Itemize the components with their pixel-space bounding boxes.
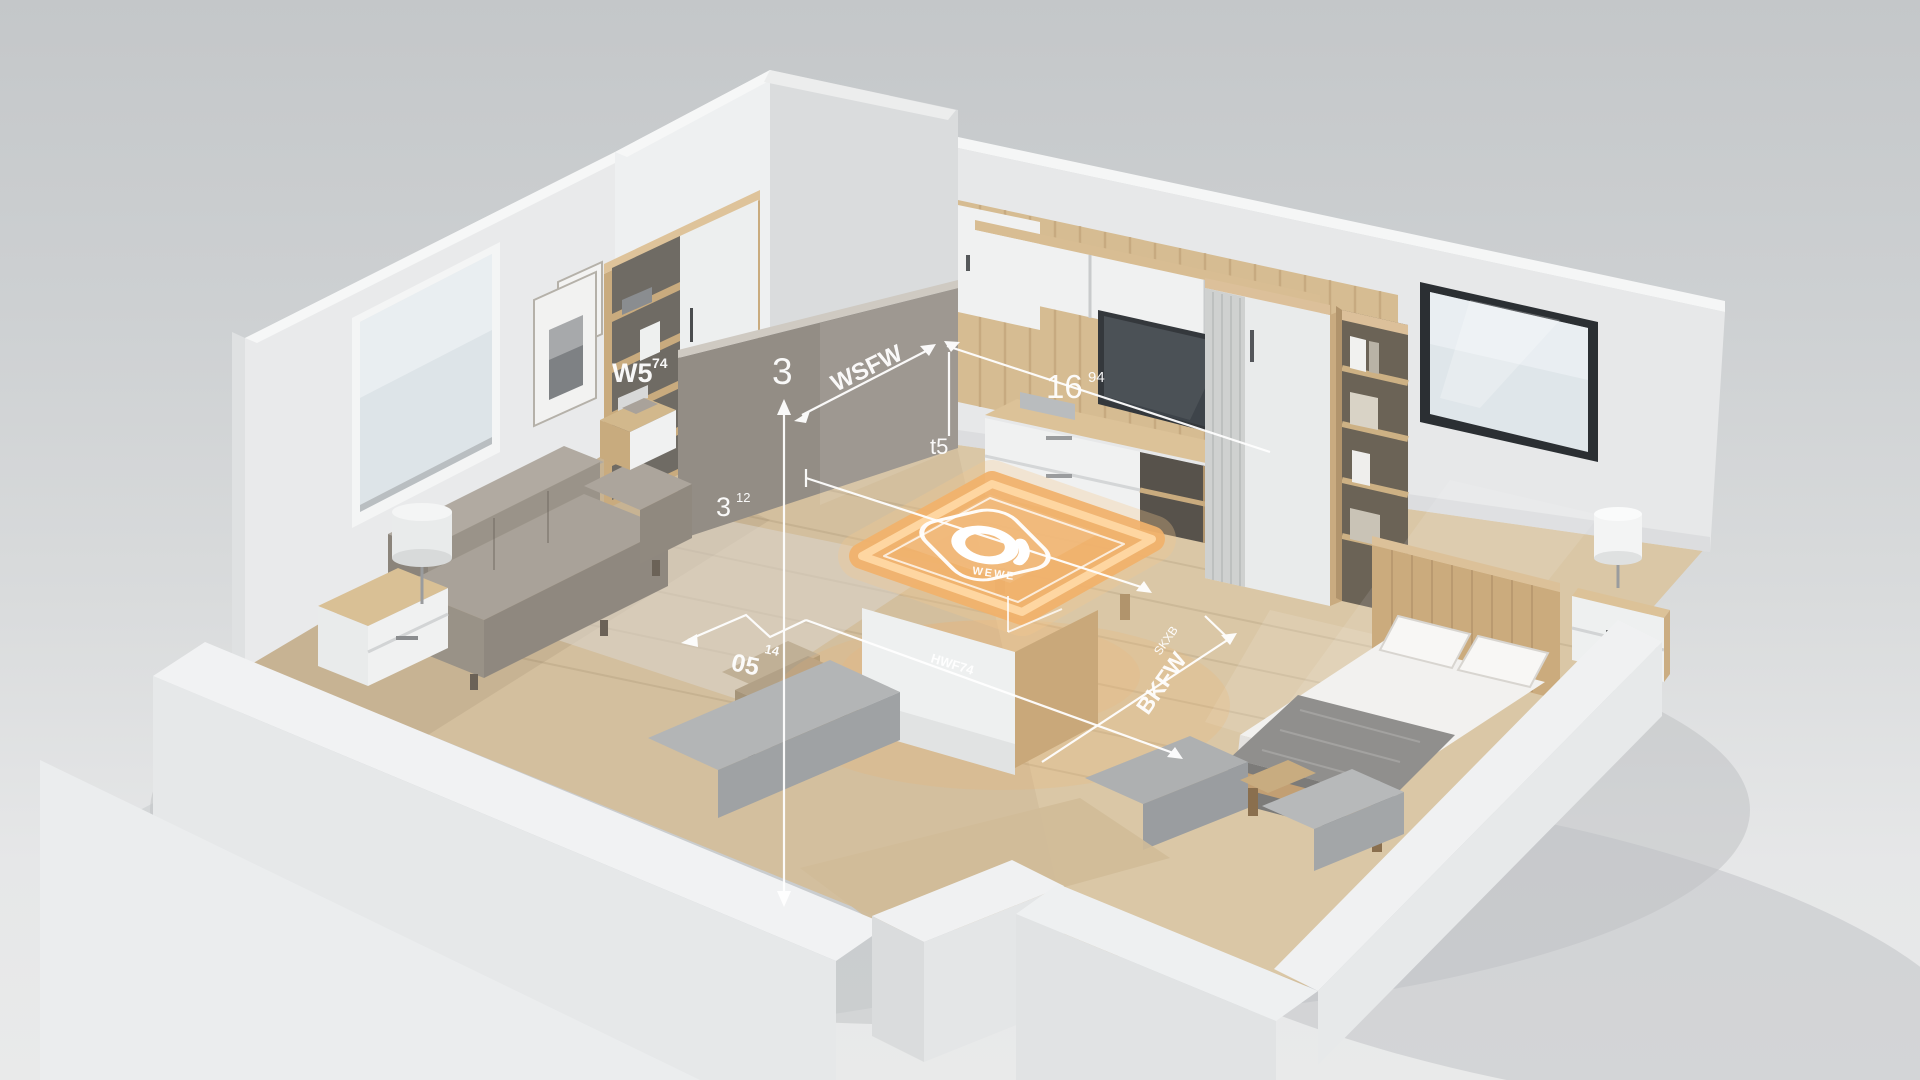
bedroom-wardrobe bbox=[1205, 278, 1342, 606]
apartment-render: WEWE bbox=[0, 0, 1920, 1080]
label-media-width-sup: 94 bbox=[1088, 369, 1105, 386]
label-closet-width: W5 bbox=[612, 358, 653, 388]
label-closet-width-sup: 74 bbox=[652, 355, 668, 371]
label-divider-height: 3 bbox=[772, 351, 793, 392]
label-living-depth: 05 bbox=[729, 648, 762, 681]
label-mid-span: t5 bbox=[930, 434, 948, 459]
label-divider-height-detail: 3 bbox=[716, 492, 731, 522]
scene-viewport[interactable]: WEWE bbox=[0, 0, 1920, 1080]
label-divider-height-detail-sup: 12 bbox=[736, 490, 750, 505]
label-media-width: 16 bbox=[1046, 368, 1083, 405]
wardrobe-handle bbox=[690, 308, 693, 342]
